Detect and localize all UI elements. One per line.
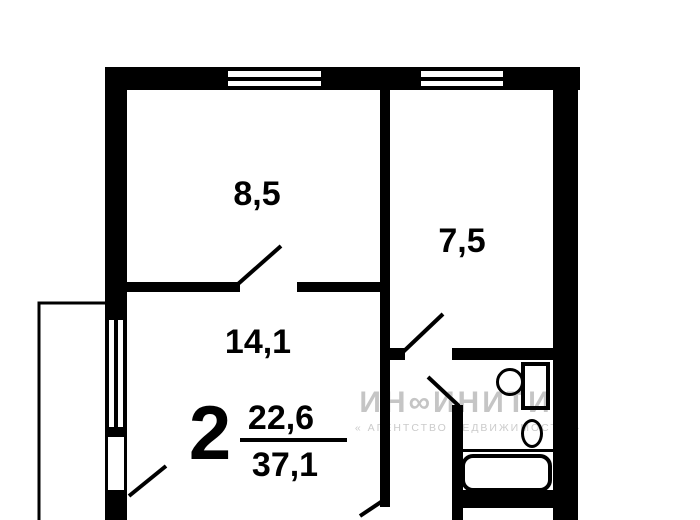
door-swing-hallway: [360, 500, 384, 516]
area-label-kitchen: 7,5: [438, 224, 485, 258]
rooms-count-label: 2: [189, 396, 231, 472]
living-area-label: 22,6: [248, 401, 314, 435]
door-swing-room-top-left: [238, 246, 281, 284]
floor-plan: 8,5 7,5 14,1 2 22,6 37,1 ИН∞ИНИТИ « АГЕН…: [0, 0, 700, 520]
area-label-room-top-left: 8,5: [233, 177, 280, 211]
door-swing-balcony: [129, 466, 166, 496]
area-label-living-room: 14,1: [225, 325, 291, 359]
total-area-label: 37,1: [252, 448, 318, 482]
door-swing-bathroom: [428, 377, 459, 406]
fraction-line: [240, 438, 347, 442]
balcony-outline: [39, 303, 105, 520]
thin-lines-layer: [0, 0, 700, 520]
door-swing-kitchen: [403, 314, 443, 352]
